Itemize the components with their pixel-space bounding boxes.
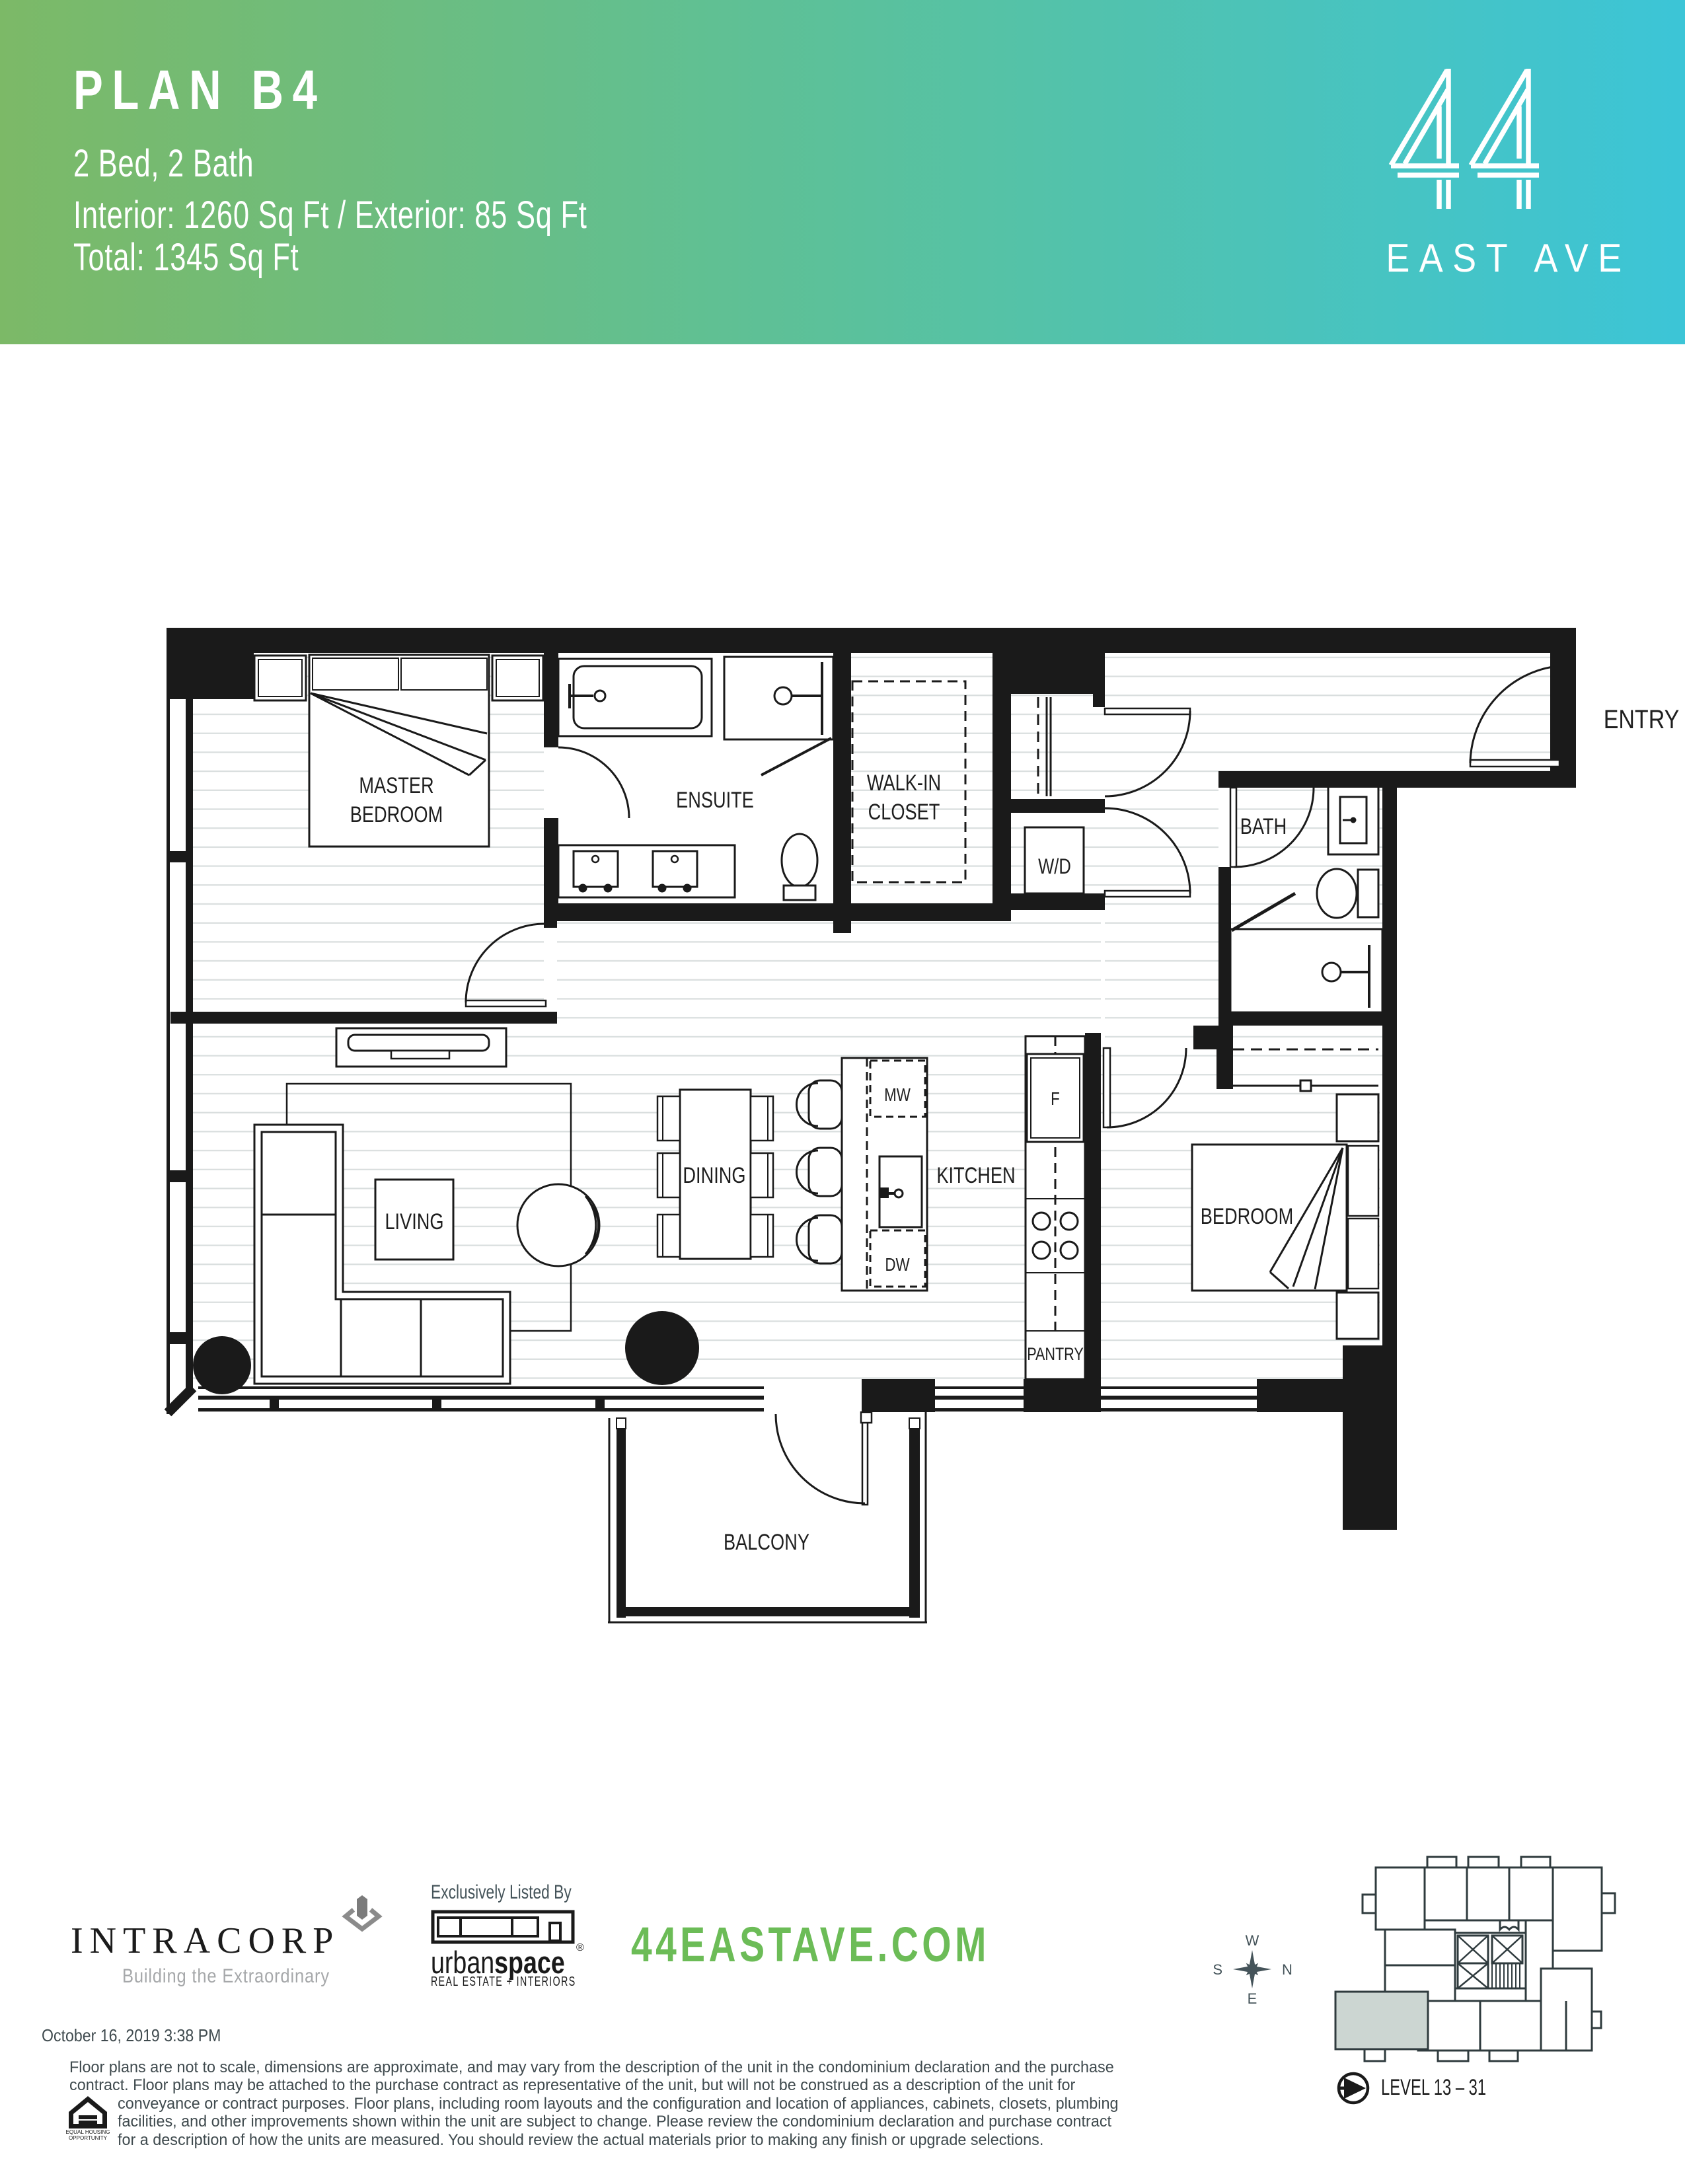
svg-text:Interior: 1260 Sq Ft / Exterio: Interior: 1260 Sq Ft / Exterior: 85 Sq F… xyxy=(73,194,587,236)
svg-text:EAST AVE: EAST AVE xyxy=(1386,236,1631,280)
svg-text:N: N xyxy=(1282,1961,1292,1978)
svg-text:S: S xyxy=(1213,1961,1222,1978)
svg-text:REAL ESTATE + INTERIORS: REAL ESTATE + INTERIORS xyxy=(431,1974,576,1989)
svg-text:E: E xyxy=(1248,1990,1257,2007)
svg-text:MASTER: MASTER xyxy=(359,772,433,798)
svg-text:LIVING: LIVING xyxy=(385,1209,443,1234)
svg-text:DINING: DINING xyxy=(683,1162,745,1188)
svg-text:W: W xyxy=(1246,1932,1259,1949)
svg-text:2 Bed, 2 Bath: 2 Bed, 2 Bath xyxy=(73,142,254,184)
svg-text:Total: 1345 Sq Ft: Total: 1345 Sq Ft xyxy=(73,236,299,278)
svg-text:facilities, and other improvem: facilities, and other improvements shown… xyxy=(118,2113,1111,2130)
svg-text:W/D: W/D xyxy=(1038,855,1071,878)
svg-text:44EASTAVE.COM: 44EASTAVE.COM xyxy=(631,1917,990,1972)
svg-text:INTRACORP: INTRACORP xyxy=(71,1920,340,1961)
svg-text:conveyance or contract purpose: conveyance or contract purposes. Floor p… xyxy=(118,2095,1118,2113)
svg-text:BATH: BATH xyxy=(1240,813,1287,839)
svg-text:PANTRY: PANTRY xyxy=(1027,1345,1084,1365)
svg-text:BEDROOM: BEDROOM xyxy=(1201,1203,1293,1229)
svg-text:PLAN B4: PLAN B4 xyxy=(73,59,326,122)
svg-text:ENTRY: ENTRY xyxy=(1604,704,1680,734)
svg-text:Building the Extraordinary: Building the Extraordinary xyxy=(122,1965,330,1986)
svg-text:WALK-IN: WALK-IN xyxy=(867,770,941,796)
svg-text:CLOSET: CLOSET xyxy=(868,799,940,825)
svg-text:MW: MW xyxy=(884,1085,911,1106)
svg-text:F: F xyxy=(1051,1089,1060,1110)
svg-text:October 16, 2019 3:38 PM: October 16, 2019 3:38 PM xyxy=(42,2027,221,2046)
svg-text:DW: DW xyxy=(885,1255,909,1275)
svg-text:KITCHEN: KITCHEN xyxy=(936,1162,1015,1188)
svg-text:ENSUITE: ENSUITE xyxy=(676,787,754,813)
svg-text:BALCONY: BALCONY xyxy=(724,1529,809,1555)
svg-text:Floor plans are not to scale,: Floor plans are not to scale, dimensions… xyxy=(69,2059,1114,2076)
svg-text:LEVEL 13 – 31: LEVEL 13 – 31 xyxy=(1381,2075,1486,2100)
svg-text:BEDROOM: BEDROOM xyxy=(350,802,443,827)
svg-text:contract. Floor plans may be a: contract. Floor plans may be attached to… xyxy=(69,2077,1075,2094)
svg-text:Exclusively Listed By: Exclusively Listed By xyxy=(431,1881,572,1903)
svg-text:®: ® xyxy=(576,1942,584,1953)
svg-text:for a description of how the u: for a description of how the units are m… xyxy=(118,2132,1043,2149)
svg-text:OPPORTUNITY: OPPORTUNITY xyxy=(69,2134,108,2141)
